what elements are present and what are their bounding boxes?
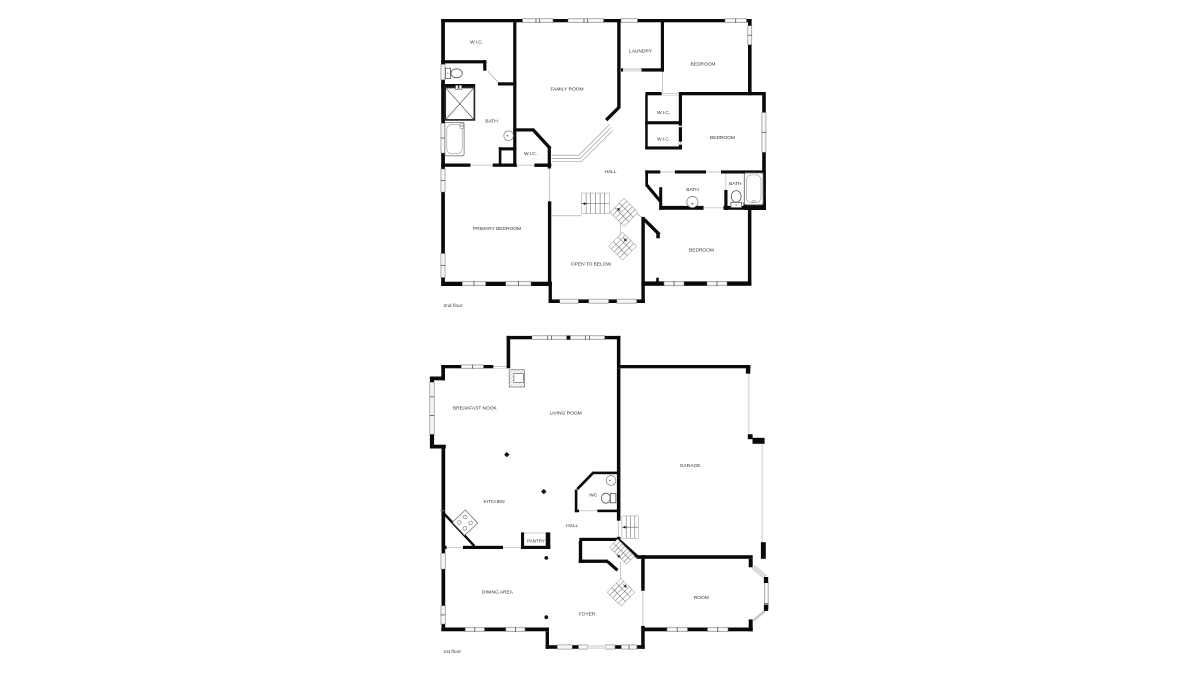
svg-text:WC: WC bbox=[589, 493, 598, 499]
svg-text:BATH: BATH bbox=[729, 181, 742, 187]
svg-text:BATH: BATH bbox=[485, 119, 498, 125]
svg-text:BREAKFAST NOOK: BREAKFAST NOOK bbox=[453, 405, 498, 411]
svg-text:HALL: HALL bbox=[566, 523, 578, 529]
svg-text:FOYER: FOYER bbox=[579, 612, 596, 618]
svg-text:KITCHEN: KITCHEN bbox=[483, 499, 505, 505]
svg-text:W.I.C.: W.I.C. bbox=[470, 39, 483, 45]
svg-text:ROOM: ROOM bbox=[694, 595, 709, 601]
svg-text:LAUNDRY: LAUNDRY bbox=[629, 48, 653, 54]
svg-text:BEDROOM: BEDROOM bbox=[710, 135, 735, 141]
svg-text:BEDROOM: BEDROOM bbox=[689, 248, 714, 254]
svg-text:FAMILY ROOM: FAMILY ROOM bbox=[551, 86, 584, 92]
svg-text:GARAGE: GARAGE bbox=[680, 463, 701, 469]
svg-text:HALL: HALL bbox=[604, 169, 616, 175]
svg-text:W.I.C.: W.I.C. bbox=[524, 151, 537, 157]
svg-text:2nd floor: 2nd floor bbox=[444, 303, 463, 309]
svg-text:W.I.C.: W.I.C. bbox=[657, 110, 670, 116]
svg-text:BEDROOM: BEDROOM bbox=[691, 61, 716, 67]
svg-text:DINING AREA: DINING AREA bbox=[482, 590, 514, 596]
svg-text:W.I.C.: W.I.C. bbox=[657, 137, 670, 143]
svg-text:LIVING ROOM: LIVING ROOM bbox=[550, 410, 582, 416]
svg-text:1st floor: 1st floor bbox=[444, 649, 462, 655]
svg-text:PRIMARY BEDROOM: PRIMARY BEDROOM bbox=[473, 226, 521, 232]
svg-text:OPEN TO BELOW: OPEN TO BELOW bbox=[571, 262, 612, 268]
svg-text:BATH: BATH bbox=[686, 187, 699, 193]
svg-text:PANTRY: PANTRY bbox=[527, 539, 545, 544]
